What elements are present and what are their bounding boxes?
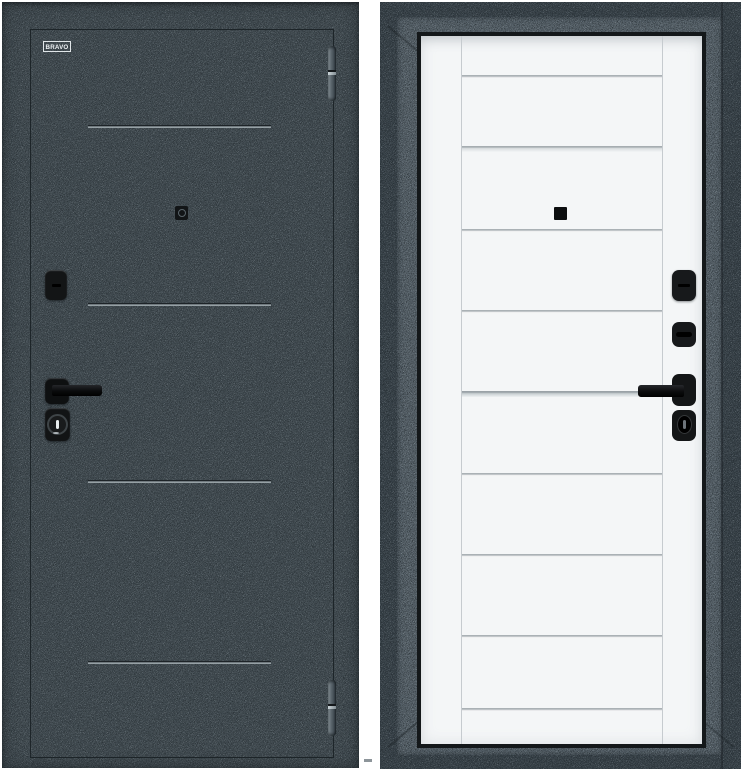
svg-text:BRAVO: BRAVO [46,44,69,51]
